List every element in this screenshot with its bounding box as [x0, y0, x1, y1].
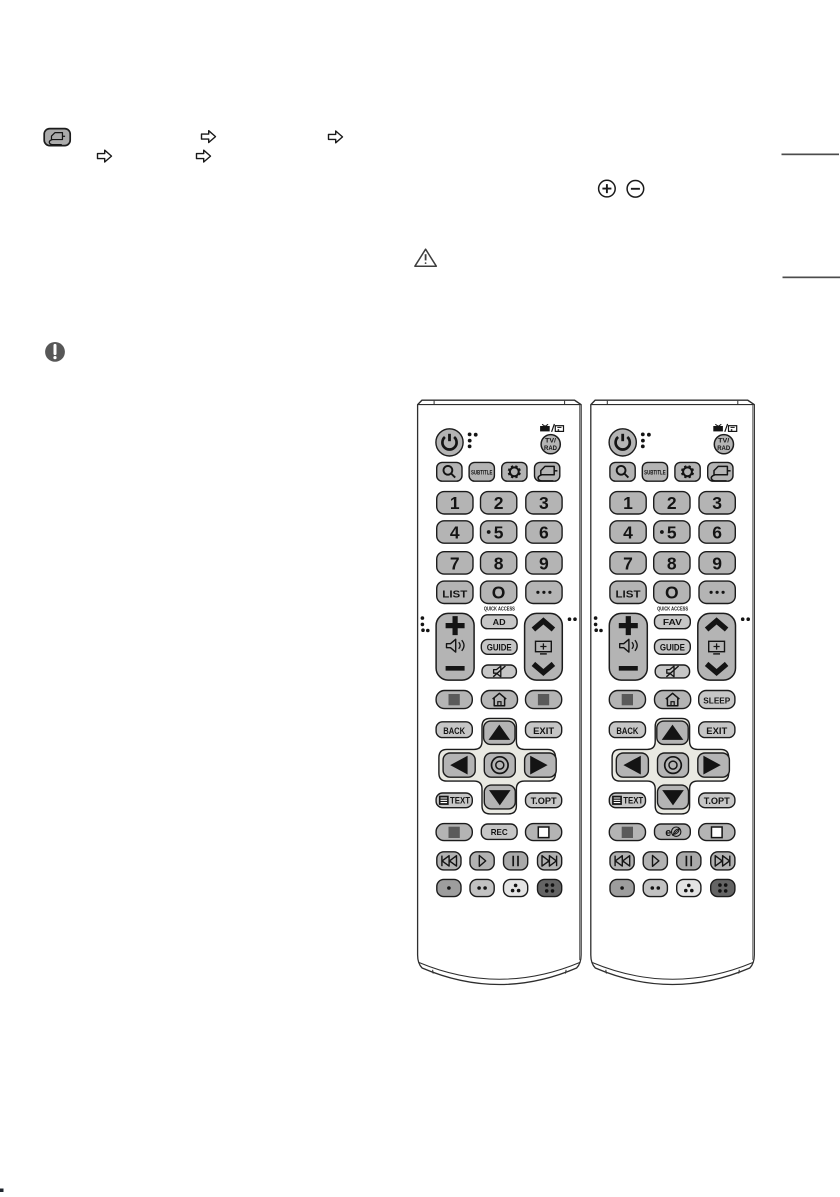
svg-text:TEXT: TEXT [450, 796, 470, 806]
svg-text:SUBTITLE: SUBTITLE [471, 470, 493, 477]
svg-text:1: 1 [450, 493, 460, 513]
svg-text:4: 4 [450, 522, 460, 542]
svg-text:6: 6 [712, 522, 722, 542]
svg-text:BACK: BACK [443, 726, 465, 737]
svg-text:REC: REC [491, 828, 508, 837]
svg-text:4: 4 [623, 522, 633, 542]
svg-text:T.OPT: T.OPT [704, 796, 730, 806]
svg-text:8: 8 [667, 553, 677, 573]
svg-text:SLEEP: SLEEP [703, 695, 730, 705]
svg-text:RAD: RAD [717, 445, 731, 452]
svg-text:TV/: TV/ [545, 437, 556, 444]
svg-text:6: 6 [539, 522, 549, 542]
svg-text:EXIT: EXIT [533, 726, 554, 737]
svg-text:2: 2 [667, 493, 677, 513]
svg-text:9: 9 [539, 553, 549, 573]
svg-text:8: 8 [494, 553, 504, 573]
svg-text:O: O [492, 583, 506, 603]
svg-text:GUIDE: GUIDE [487, 643, 512, 653]
svg-text:9: 9 [712, 553, 722, 573]
svg-text:1: 1 [623, 493, 633, 513]
svg-text:QUICK ACCESS: QUICK ACCESS [657, 607, 688, 613]
svg-text:e: e [665, 827, 671, 839]
svg-text:FAV: FAV [663, 617, 682, 627]
svg-text:TEXT: TEXT [623, 796, 643, 806]
svg-text:EXIT: EXIT [706, 726, 727, 737]
svg-text:O: O [665, 583, 679, 603]
svg-text:TV/: TV/ [718, 437, 729, 444]
svg-text:3: 3 [712, 493, 722, 513]
svg-text:7: 7 [623, 553, 633, 573]
svg-text:SUBTITLE: SUBTITLE [644, 470, 666, 477]
svg-text:T.OPT: T.OPT [531, 796, 557, 806]
svg-text:AD: AD [493, 617, 506, 627]
svg-text:LIST: LIST [442, 589, 468, 601]
svg-text:7: 7 [450, 553, 460, 573]
svg-text:2: 2 [494, 493, 504, 513]
svg-text:3: 3 [539, 493, 549, 513]
svg-text:GUIDE: GUIDE [660, 643, 685, 653]
svg-text:LIST: LIST [616, 589, 642, 601]
svg-text:RAD: RAD [544, 445, 558, 452]
svg-text:QUICK ACCESS: QUICK ACCESS [484, 607, 515, 613]
svg-text:5: 5 [667, 522, 677, 542]
svg-text:BACK: BACK [616, 726, 638, 737]
svg-text:5: 5 [494, 522, 504, 542]
